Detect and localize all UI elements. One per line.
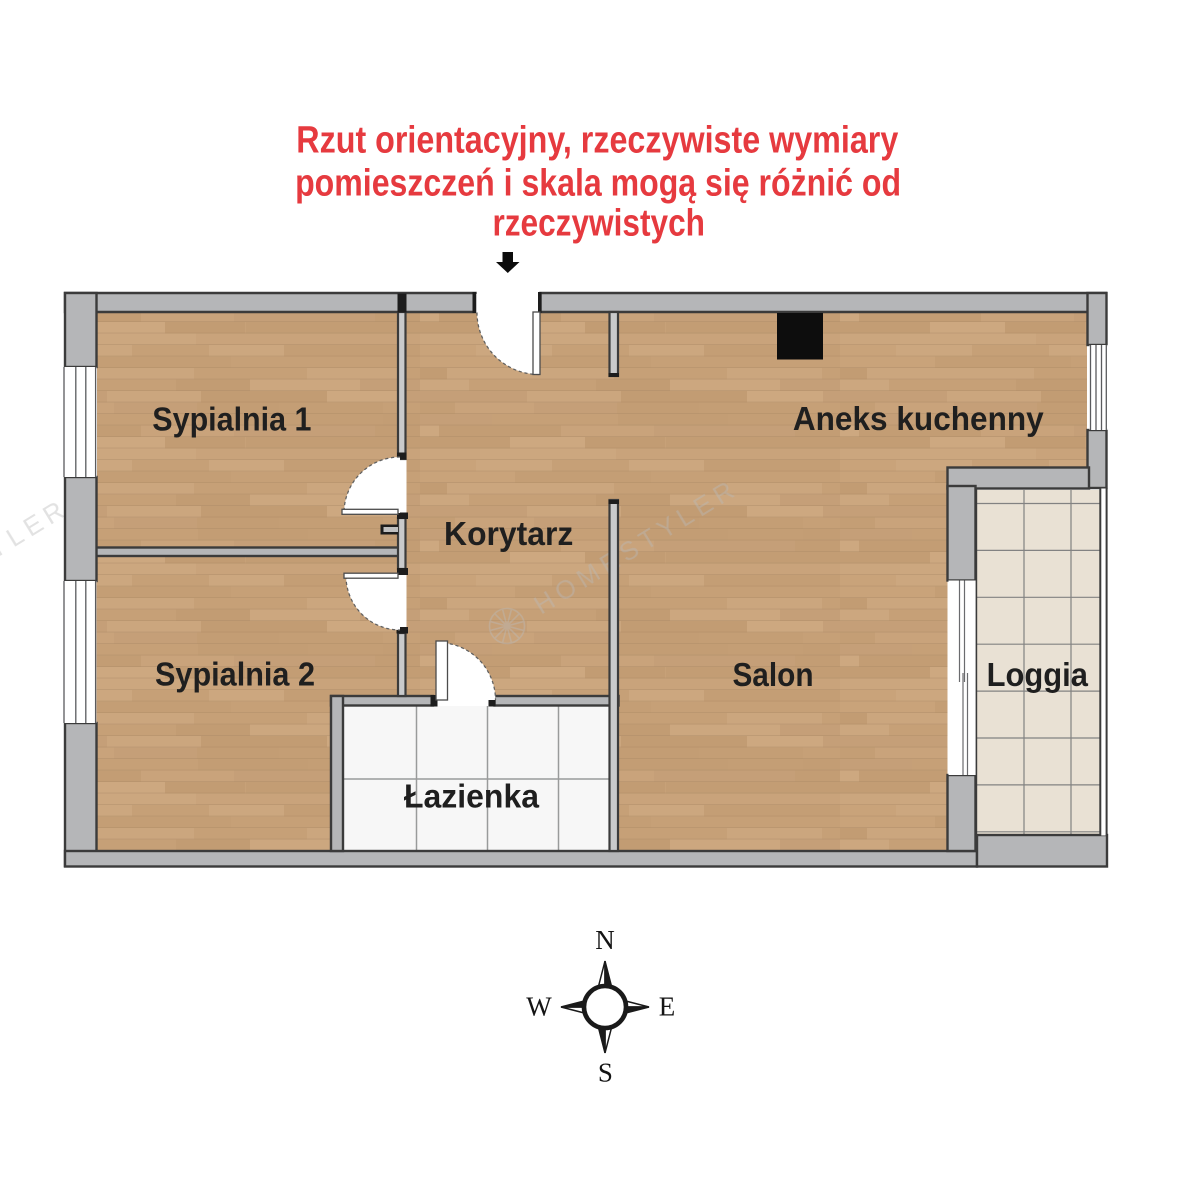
svg-text:Salon: Salon <box>732 657 813 694</box>
svg-text:Łazienka: Łazienka <box>404 779 539 816</box>
svg-text:rzeczywistych: rzeczywistych <box>492 203 705 245</box>
svg-text:N: N <box>595 925 615 955</box>
svg-text:Sypialnia 2: Sypialnia 2 <box>155 657 315 694</box>
svg-text:E: E <box>659 991 676 1021</box>
svg-text:Loggia: Loggia <box>987 657 1089 694</box>
svg-text:Korytarz: Korytarz <box>444 516 573 553</box>
svg-text:Sypialnia 1: Sypialnia 1 <box>152 401 311 438</box>
svg-text:Rzut orientacyjny, rzeczywiste: Rzut orientacyjny, rzeczywiste wymiary <box>296 120 898 162</box>
svg-text:S: S <box>598 1057 613 1087</box>
svg-text:pomieszczeń i skala mogą się r: pomieszczeń i skala mogą się różnić od <box>295 163 901 205</box>
svg-text:W: W <box>526 991 552 1021</box>
svg-text:Aneks kuchenny: Aneks kuchenny <box>793 401 1044 438</box>
svg-text:HOMESTYLER: HOMESTYLER <box>0 492 74 640</box>
